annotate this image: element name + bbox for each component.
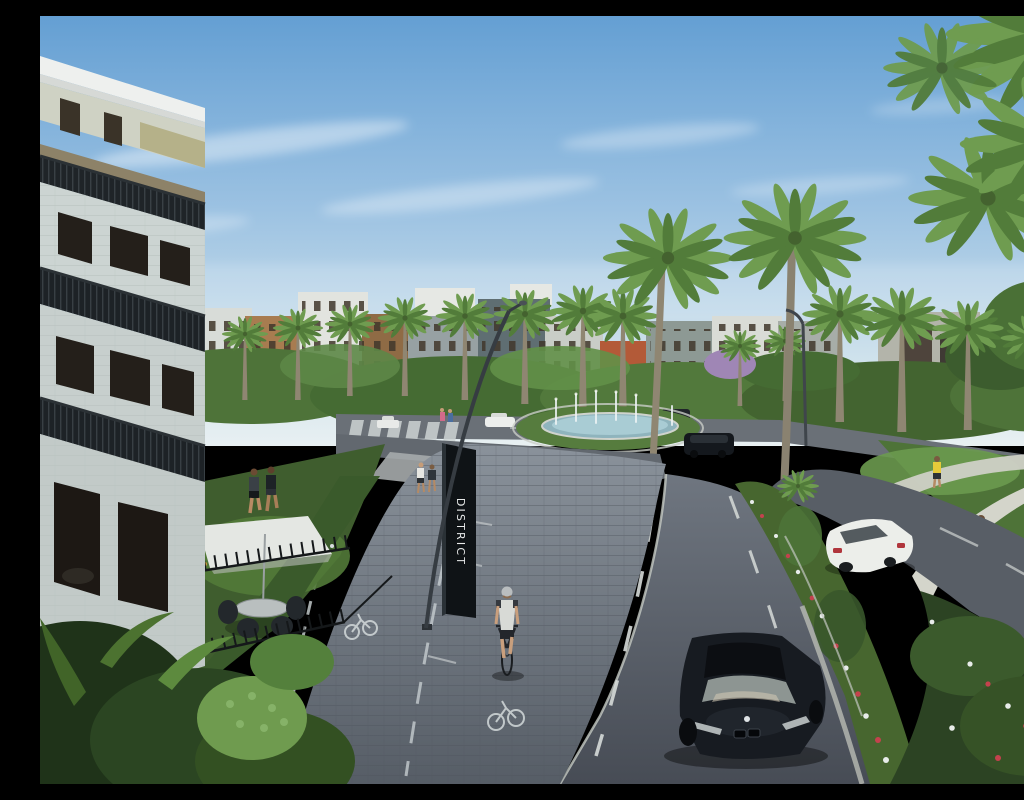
district-community-rendering: DISTRICT: [40, 16, 1024, 784]
district-sign: DISTRICT: [442, 443, 476, 618]
district-sign-label: DISTRICT: [454, 498, 467, 566]
patio-opening: [118, 502, 168, 612]
black-coupe: [664, 632, 828, 769]
black-suv-roundabout: [684, 433, 734, 458]
